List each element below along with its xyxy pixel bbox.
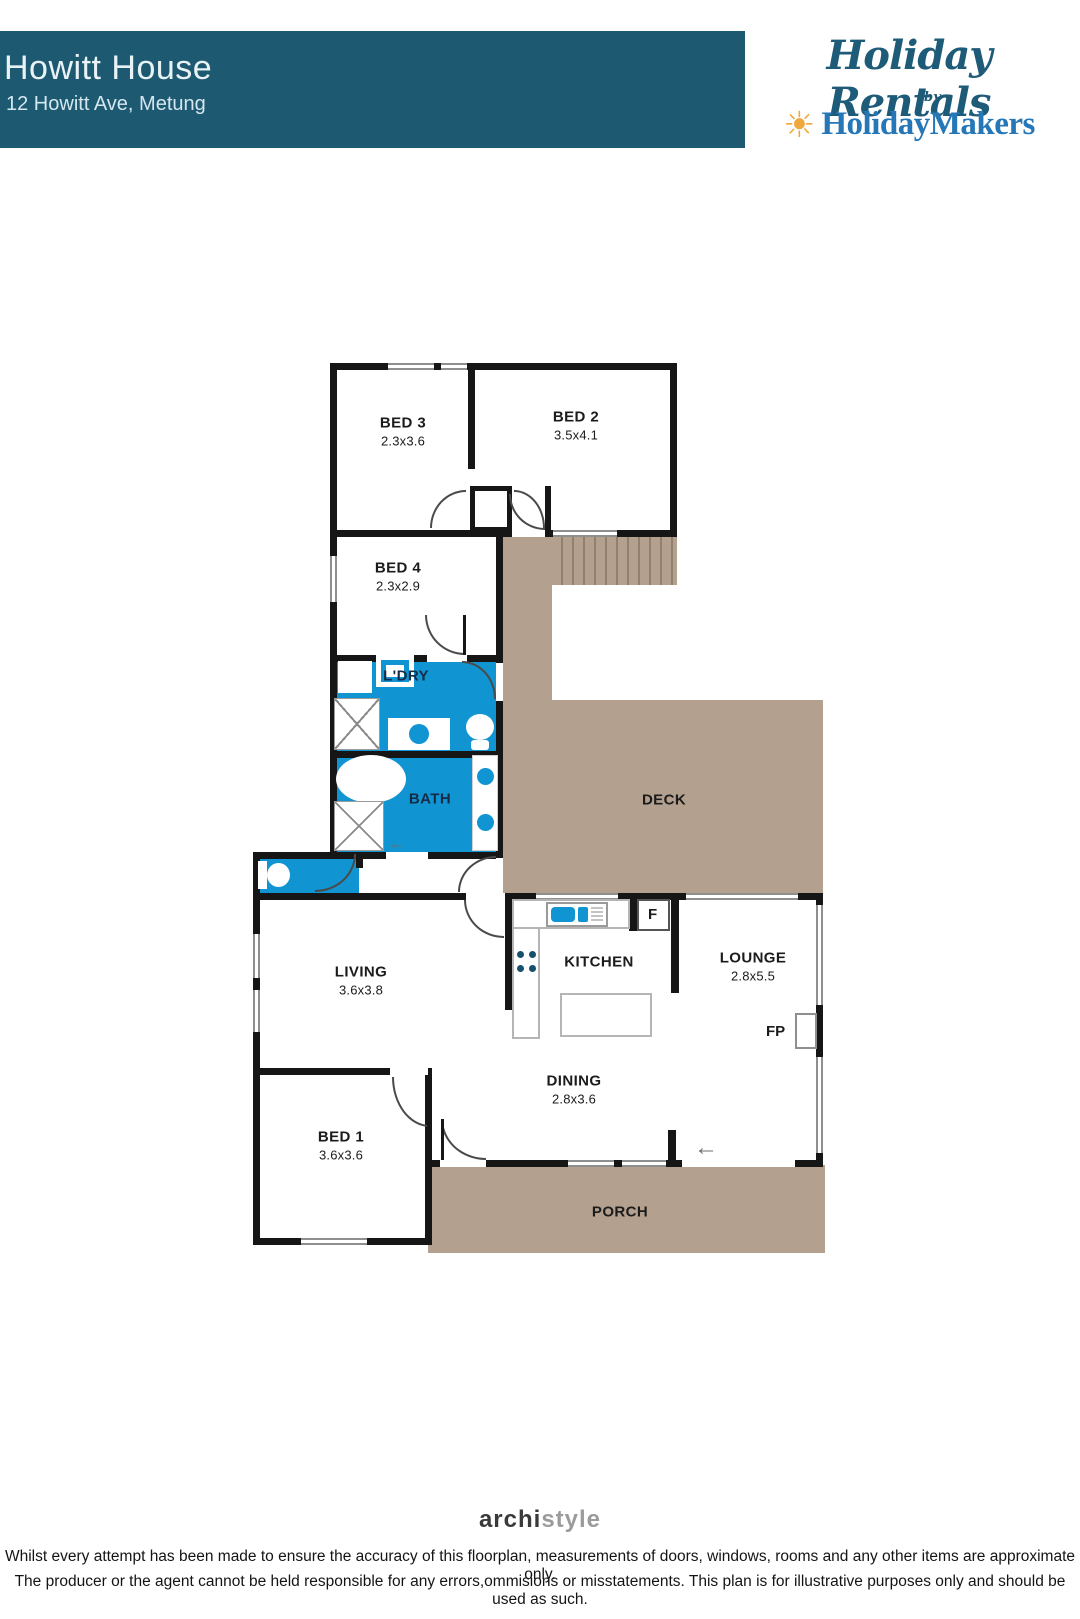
wall [505,893,512,1010]
door-gap [512,530,545,537]
room-dims: 2.8x3.6 [547,1091,602,1107]
basin [477,814,494,831]
room-name: LOUNGE [720,950,787,967]
door-gap [496,858,503,893]
laundry-bench [338,661,372,693]
room-dims: 2.8x5.5 [720,968,787,984]
wall [330,363,677,370]
door-arc [464,900,504,938]
agency-logo: Holiday Rentals by ☀ HolidayMakers [748,30,1070,150]
logo-brand-row: ☀ HolidayMakers [748,106,1070,143]
wall [496,530,503,662]
room-name: BED 4 [375,560,421,577]
basin [477,768,494,785]
stove [517,951,524,958]
door-arc [441,1119,486,1160]
window [816,1057,823,1153]
room-label-bed1: BED 1 3.6x3.6 [318,1129,364,1164]
slide-arrow-icon: ← [388,834,406,852]
wall [468,363,475,469]
room-label-deck: DECK [642,792,686,811]
room-name: L'DRY [383,668,429,685]
sun-icon: ☀ [783,107,815,143]
room-label-bed2: BED 2 3.5x4.1 [553,409,599,444]
door-leaf [441,1119,444,1160]
fridge-label: F [648,906,657,923]
room-label-laundry: L'DRY [383,668,429,687]
door-gap [466,893,505,900]
door-leaf [427,1077,430,1127]
wall [668,1130,676,1167]
logo-brand-text: HolidayMakers [821,106,1035,143]
room-name: DINING [547,1073,602,1090]
window [301,1238,367,1245]
wall [356,852,363,868]
sliding-door-gap [682,1160,795,1167]
sink-bowl [551,907,575,922]
wall [670,363,677,537]
window [816,905,823,1005]
floorplan-page: Howitt House 12 Howitt Ave, Metung Holid… [0,0,1080,1619]
linen-cupboard [334,698,380,750]
window [330,556,337,602]
archistyle-bold: archi [479,1506,541,1533]
room-name: BATH [409,791,451,808]
room-name: DECK [642,792,686,809]
sink-bowl [578,907,588,922]
slide-arrow-icon: ← [694,1136,718,1160]
window [686,893,798,900]
room-label-living: LIVING 3.6x3.8 [335,964,387,999]
room-name: BED 2 [553,409,599,426]
washing-machine-door [409,724,429,744]
window [388,363,434,370]
room-name: BED 1 [318,1129,364,1146]
room-label-bath: BATH [409,791,451,810]
vanity [472,755,498,851]
toilet-tank [258,861,267,889]
wall [330,363,337,859]
window [568,1160,614,1167]
deck-stairs [552,535,677,585]
shower [334,801,384,851]
door-gap [427,655,467,662]
toilet-base [471,740,489,750]
fireplace-box [795,1013,817,1049]
room-label-bed4: BED 4 2.3x2.9 [375,560,421,595]
page-address: 12 Howitt Ave, Metung [6,93,206,116]
deck-walkway [503,535,552,893]
washing-machine [388,718,450,750]
room-name: BED 3 [380,415,426,432]
room-label-lounge: LOUNGE 2.8x5.5 [720,950,787,985]
window [553,530,617,537]
window [622,1160,666,1167]
page-title: Howitt House [4,49,212,88]
room-dims: 3.5x4.1 [553,427,599,443]
room-name: PORCH [592,1204,648,1221]
room-dims: 3.6x3.8 [335,982,387,998]
bathtub [336,755,406,803]
disclaimer-line-2: The producer or the agent cannot be held… [0,1573,1080,1609]
door-arc [425,615,465,655]
wall [545,486,551,534]
door-gap [390,1068,428,1075]
header-bar: Howitt House 12 Howitt Ave, Metung [0,31,745,148]
fireplace-label: FP [766,1023,785,1040]
archistyle-logo: archistyle [0,1506,1080,1534]
room-dims: 2.3x2.9 [375,578,421,594]
window [253,990,260,1032]
kitchen-sink [546,902,608,927]
toilet [267,863,290,887]
door-gap [440,1160,486,1167]
door-arc [392,1077,430,1127]
sink-drainer [591,907,603,922]
kitchen-island [560,993,652,1037]
kitchen-bench [512,927,540,1039]
room-label-dining: DINING 2.8x3.6 [547,1073,602,1108]
room-name: KITCHEN [564,954,633,971]
room-label-porch: PORCH [592,1204,648,1223]
hall-closet [470,486,512,532]
door-arc [430,490,466,528]
room-dims: 3.6x3.6 [318,1147,364,1163]
toilet [466,714,494,740]
room-label-bed3: BED 3 2.3x3.6 [380,415,426,450]
window [441,363,467,370]
window [253,934,260,978]
wall [629,893,637,931]
room-label-kitchen: KITCHEN [564,954,633,973]
door-gap [386,852,428,859]
logo-by-text: by [924,90,941,105]
archistyle-light: style [541,1506,601,1533]
room-name: LIVING [335,964,387,981]
door-arc [458,856,496,892]
door-gap [496,663,503,701]
door-leaf [463,615,466,655]
deck-area [552,700,823,893]
room-dims: 2.3x3.6 [380,433,426,449]
wall [671,893,679,993]
